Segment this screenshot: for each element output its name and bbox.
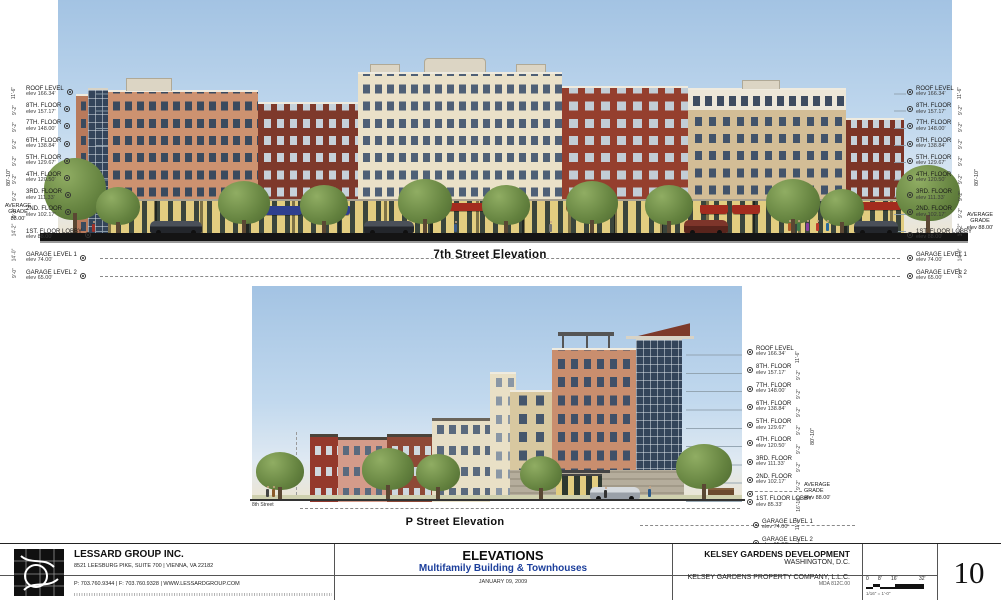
dim-label: 16'-10": [794, 494, 803, 512]
scale-bar-ticks: 08'16'32': [866, 576, 932, 583]
level-label: 3RD. FLOOR elev 111.33': [26, 189, 94, 202]
title-block: LESSARD GROUP INC. 8521 LEESBURG PIKE, S…: [0, 543, 1001, 600]
average-grade-name: AVERAGE GRADE: [2, 203, 34, 216]
elevation-title-p: P Street Elevation: [255, 516, 655, 528]
level-elevation: elev 148.00': [916, 127, 951, 133]
level-elevation: elev 111.33': [26, 196, 62, 202]
level-marker-icon: [907, 158, 913, 164]
level-marker-icon: [907, 123, 913, 129]
level-elevation: elev 120.50': [916, 178, 951, 184]
garage-level1-line-p: [640, 525, 855, 526]
center-pediment: [424, 58, 486, 73]
dim-label: 9'-2": [956, 153, 965, 170]
firm-address: 8521 LEESBURG PIKE, SUITE 700 | VIENNA, …: [74, 563, 213, 569]
awning-red-1: [700, 205, 728, 214]
drawing-sheet: ROOF LEVEL elev 166.34' 8TH. FLOOR elev …: [0, 0, 1001, 600]
person: [788, 223, 791, 231]
garage-dims-7th-right: 14'-0"9'-0": [956, 246, 965, 282]
level-elevation: elev 111.33': [756, 462, 792, 468]
car: [150, 221, 202, 233]
level-elevation: elev 65.00': [26, 276, 77, 282]
dim-label: 9'-2": [794, 385, 803, 403]
tree: [362, 448, 414, 500]
overall-dim-p: 80'-10": [810, 428, 816, 445]
dim-label: 14'-0": [10, 246, 19, 264]
person: [826, 223, 829, 231]
curb-line: [40, 241, 968, 243]
tree: [218, 181, 270, 235]
tree: [482, 185, 530, 235]
level-marker-icon: [907, 89, 913, 95]
tree: [96, 187, 140, 235]
level-marker-icon: [67, 89, 73, 95]
level-label: 4TH. FLOOR elev 120.50': [26, 172, 94, 185]
level-label: 6TH. FLOOR elev 138.84': [26, 138, 94, 151]
street-ground-band: [40, 233, 968, 241]
titleblock-divider: [862, 544, 863, 600]
level-marker-icon: [85, 232, 91, 238]
firm-name: LESSARD GROUP INC.: [74, 549, 184, 560]
firm-contact: P: 703.760.9344 | F: 703.760.9328 | WWW.…: [74, 581, 240, 587]
floor-dims-p: 11'-6"9'-2"9'-2"9'-2"9'-2"9'-2"9'-2"9'-2…: [794, 348, 803, 513]
dim-label: 9'-2": [10, 153, 19, 170]
client-name: KELSEY GARDENS DEVELOPMENT: [672, 549, 850, 559]
person: [797, 223, 800, 231]
level-elevation: elev 166.34': [756, 352, 794, 358]
average-grade-elev: elev 88.00': [960, 225, 1000, 231]
person: [648, 489, 651, 497]
client-cell: KELSEY GARDENS DEVELOPMENT WASHINGTON, D…: [672, 544, 856, 600]
level-elevation: elev 138.84': [26, 144, 61, 150]
level-marker-icon: [907, 106, 913, 112]
person: [806, 223, 809, 231]
level-label: 5TH. FLOOR elev 129.67': [26, 155, 94, 168]
person: [604, 490, 607, 498]
level-elevation: elev 138.84': [756, 407, 791, 413]
dim-label: 9'-0": [956, 264, 965, 282]
garage-level2-line: [100, 276, 900, 277]
average-grade-name: AVERAGE GRADE: [804, 482, 846, 495]
dim-label: 14'-2": [10, 222, 19, 239]
average-grade-left: AVERAGE GRADE 88.00': [2, 203, 34, 222]
car: [854, 221, 898, 233]
penthouse-tan: [742, 80, 780, 89]
level-marker-icon: [907, 209, 913, 215]
level-elevation: elev 74.00': [762, 525, 813, 531]
lessard-logo: [14, 549, 64, 596]
dim-label: 9'-2": [10, 187, 19, 204]
car: [684, 220, 728, 233]
level-marker-icon: [747, 440, 753, 446]
pergola-post: [562, 336, 564, 348]
dim-label: 9'-2": [956, 136, 965, 153]
person: [816, 223, 819, 231]
level-elevation: elev 74.00': [26, 258, 77, 264]
level-label: ROOF LEVEL elev 166.34': [26, 86, 94, 99]
dim-label: 9'-2": [794, 458, 803, 476]
car: [364, 221, 414, 233]
scale-tick-label: 0: [866, 576, 869, 582]
dim-label: 9'-2": [10, 136, 19, 153]
level-elevation: elev 166.34': [916, 92, 954, 98]
average-grade-elev: elev 88.00': [804, 495, 846, 501]
awning-red-2: [732, 205, 760, 214]
average-grade-right: AVERAGE GRADE elev 88.00': [960, 212, 1000, 231]
level-label: 7TH. FLOOR elev 148.00': [26, 120, 94, 133]
sheet-subtitle: Multifamily Building & Townhouses: [334, 563, 672, 574]
dim-label: 9'-2": [956, 187, 965, 204]
scale-tick-label: 16': [891, 576, 898, 582]
level-marker-icon: [747, 422, 753, 428]
dim-label: 14'-0": [956, 246, 965, 264]
dim-label: 11'-6": [794, 348, 803, 366]
person: [454, 224, 457, 232]
garage-dims-7th-left: 14'-0"9'-0": [10, 246, 19, 282]
average-grade-elev: 88.00': [2, 216, 34, 222]
dim-label: 11'-6": [956, 84, 965, 101]
average-grade-name: AVERAGE GRADE: [960, 212, 1000, 225]
level-elevation: elev 157.17': [26, 110, 61, 116]
dim-label: 9'-2": [794, 366, 803, 384]
level-marker-icon: [747, 404, 753, 410]
dim-label: 9'-2": [10, 101, 19, 118]
grade-line: [250, 499, 745, 501]
garage-level-label: GARAGE LEVEL 1 elev 74.00': [750, 519, 813, 532]
dim-label: 9'-2": [794, 476, 803, 494]
level-marker-icon: [907, 175, 913, 181]
level-marker-icon: [747, 477, 753, 483]
townhouse-red: [310, 434, 338, 502]
dim-label: 9'-0": [10, 264, 19, 282]
garage-labels-7th-left: GARAGE LEVEL 1 elev 74.00' GARAGE LEVEL …: [26, 252, 89, 287]
level-marker-icon: [65, 209, 71, 215]
pergola-post: [586, 336, 588, 348]
tree: [520, 456, 562, 500]
dim-label: 9'-2": [956, 170, 965, 187]
dim-label: 9'-2": [794, 439, 803, 457]
level-labels-7th-left: ROOF LEVEL elev 166.34' 8TH. FLOOR elev …: [26, 86, 94, 246]
sheet-date: JANUARY 09, 2009: [334, 579, 672, 585]
scale-tick-label: 8': [878, 576, 882, 582]
level-marker-icon: [80, 273, 86, 279]
level-marker-icon: [747, 459, 753, 465]
level-label: 2ND. FLOOR elev 102.17': [26, 206, 94, 219]
level-marker-icon: [753, 522, 759, 528]
project-number: MDA 812C.00: [672, 581, 850, 587]
level-marker-icon: [65, 192, 71, 198]
average-grade-p: AVERAGE GRADE elev 88.00': [804, 482, 846, 501]
level-marker-icon: [907, 192, 913, 198]
level-elevation: elev 148.00': [26, 127, 61, 133]
level-marker-icon: [907, 255, 913, 261]
client-owner: KELSEY GARDENS PROPERTY COMPANY, L.L.C.: [672, 574, 850, 581]
level-elevation: elev 129.67': [26, 161, 61, 167]
level-marker-icon: [747, 491, 753, 497]
street-label: 8th Street: [252, 502, 274, 508]
level-elevation: elev 102.17': [916, 213, 952, 219]
level-elevation: elev 120.50': [756, 444, 791, 450]
level-marker-icon: [64, 106, 70, 112]
level-elevation: elev 166.34': [26, 92, 64, 98]
overall-dim-7th-right: 80'-10": [974, 169, 980, 186]
tree: [416, 454, 460, 500]
tree: [766, 179, 820, 235]
fine-print: [74, 593, 332, 596]
dim-label: 9'-2": [956, 118, 965, 135]
level-marker-icon: [64, 175, 70, 181]
level-marker-icon: [907, 232, 913, 238]
tree: [566, 181, 618, 235]
scale-bar-graphic: [866, 584, 924, 589]
scale-note: 1/16" = 1'-0": [866, 591, 932, 596]
level-marker-icon: [64, 158, 70, 164]
dim-label: 9'-2": [956, 101, 965, 118]
p-street-bottom-dim-line: [300, 508, 740, 509]
sheet-number: 10: [937, 544, 1001, 600]
level-elevation: elev 88.00': [26, 235, 82, 241]
level-marker-icon: [907, 141, 913, 147]
garage-level-label: GARAGE LEVEL 1 elev 74.00': [26, 252, 89, 265]
level-marker-icon: [747, 367, 753, 373]
level-elevation: elev 120.50': [26, 178, 61, 184]
level-elevation: elev 102.17': [756, 480, 792, 486]
level-elevation: elev 148.00': [756, 389, 791, 395]
level-label: 1ST. FLOOR LOBBY elev 88.00': [26, 229, 94, 242]
level-marker-icon: [80, 255, 86, 261]
tree: [676, 444, 732, 500]
level-elevation: elev 129.67': [916, 161, 951, 167]
level-elevation: elev 129.67': [756, 426, 791, 432]
sheet-title: ELEVATIONS: [334, 548, 672, 563]
tree: [300, 185, 348, 235]
level-marker-icon: [64, 123, 70, 129]
person: [272, 489, 275, 497]
elevation-title-7th: 7th Street Elevation: [290, 249, 690, 261]
client-city: WASHINGTON, D.C.: [672, 559, 850, 566]
overall-dim-7th-left: 80'-10": [6, 169, 12, 186]
level-marker-icon: [907, 273, 913, 279]
level-marker-icon: [747, 499, 753, 505]
tree: [256, 452, 304, 500]
dim-label: 9'-2": [10, 118, 19, 135]
person: [549, 224, 552, 232]
level-marker-icon: [747, 386, 753, 392]
scale-bar: 08'16'32' 1/16" = 1'-0": [866, 576, 932, 596]
level-elevation: elev 85.33': [756, 503, 812, 509]
car: [590, 487, 640, 499]
dim-label: 9'-2": [794, 403, 803, 421]
level-label: 8TH. FLOOR elev 157.17': [26, 103, 94, 116]
penthouse-salmon: [126, 78, 172, 91]
dim-label: 11'-4": [794, 515, 803, 533]
person: [266, 489, 269, 497]
pergola-post: [608, 336, 610, 348]
level-elevation: elev 138.84': [916, 144, 951, 150]
sheet-title-cell: ELEVATIONS Multifamily Building & Townho…: [334, 544, 672, 600]
facade-tan-top-band: [688, 88, 846, 112]
level-elevation: elev 157.17': [756, 371, 791, 377]
level-elevation: elev 157.17': [916, 110, 951, 116]
level-marker-icon: [747, 349, 753, 355]
scale-tick-label: 32': [919, 576, 926, 582]
garage-level-label: GARAGE LEVEL 2 elev 65.00': [26, 270, 89, 283]
dim-label: 11'-6": [10, 84, 19, 101]
level-elevation: elev 111.33': [916, 196, 952, 202]
level-marker-icon: [64, 141, 70, 147]
dim-label: 9'-2": [794, 421, 803, 439]
